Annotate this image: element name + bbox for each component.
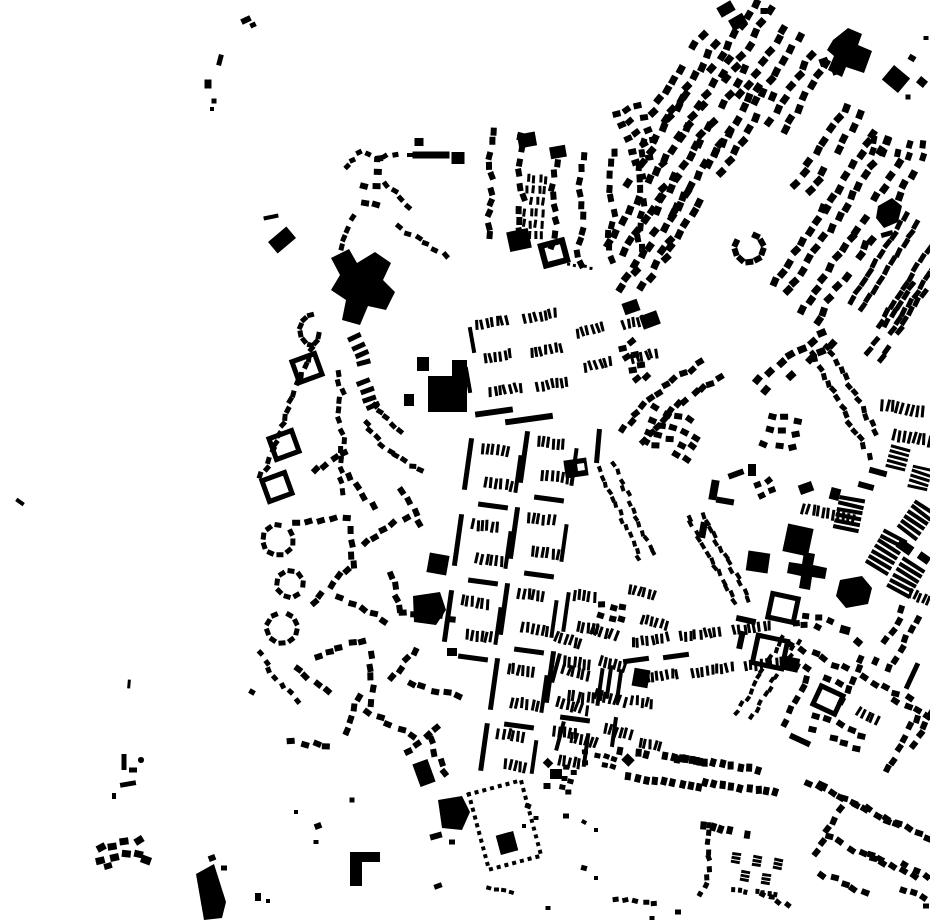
building	[516, 731, 520, 742]
building	[654, 389, 664, 398]
building	[660, 776, 668, 785]
building	[764, 476, 773, 485]
building-cluster	[797, 232, 870, 327]
building	[294, 810, 298, 814]
building	[278, 570, 287, 578]
building	[906, 140, 914, 149]
building	[724, 155, 735, 166]
building	[808, 726, 817, 734]
building	[816, 505, 820, 516]
building	[531, 826, 536, 831]
building	[798, 481, 815, 495]
building	[428, 360, 467, 412]
building-cluster	[338, 213, 356, 251]
building	[257, 649, 265, 657]
building	[662, 84, 673, 95]
building	[709, 758, 717, 767]
building	[711, 665, 714, 675]
building	[583, 363, 587, 373]
building	[468, 577, 498, 586]
building	[551, 203, 559, 212]
building	[706, 830, 712, 836]
building	[818, 136, 829, 147]
building	[438, 796, 470, 830]
building	[276, 552, 283, 557]
building	[516, 217, 522, 225]
building	[447, 648, 457, 656]
building-cluster	[574, 152, 588, 269]
building	[502, 729, 507, 740]
building	[292, 520, 300, 526]
building	[520, 621, 525, 632]
building	[566, 699, 571, 710]
building	[340, 234, 347, 242]
building	[462, 438, 474, 490]
building	[210, 107, 214, 111]
building	[581, 819, 587, 825]
building	[661, 380, 671, 389]
building	[212, 99, 217, 104]
building	[522, 762, 527, 773]
building-cluster	[567, 690, 595, 704]
building	[651, 777, 658, 786]
building	[368, 650, 375, 659]
building	[559, 784, 566, 790]
building	[404, 496, 413, 506]
building	[914, 829, 923, 837]
building-cluster	[576, 321, 605, 339]
building	[768, 894, 775, 900]
building	[545, 626, 549, 637]
building	[563, 814, 569, 819]
building	[559, 698, 565, 709]
building	[811, 215, 822, 226]
building	[402, 514, 412, 523]
building	[335, 416, 342, 424]
building	[768, 620, 771, 630]
building	[785, 80, 796, 91]
building	[561, 439, 565, 450]
building	[541, 240, 567, 265]
building	[544, 783, 551, 789]
building	[813, 175, 824, 186]
building	[571, 690, 575, 701]
building	[577, 589, 581, 600]
building-cluster	[470, 518, 499, 533]
building-cluster	[563, 655, 591, 670]
building	[541, 625, 546, 636]
building	[866, 159, 877, 170]
building	[895, 191, 905, 202]
building	[264, 628, 271, 636]
building	[719, 759, 727, 768]
building	[826, 122, 837, 133]
building	[618, 215, 628, 226]
building	[263, 659, 271, 667]
building	[466, 792, 471, 797]
building-cluster	[347, 332, 371, 367]
building	[514, 646, 544, 655]
building	[285, 611, 294, 619]
building	[468, 577, 498, 586]
building	[757, 622, 761, 632]
building-cluster	[348, 526, 358, 569]
building	[671, 450, 681, 459]
building	[606, 185, 613, 193]
building	[530, 208, 533, 216]
building	[356, 377, 371, 387]
building	[460, 594, 465, 605]
building-cluster	[731, 231, 766, 265]
building	[417, 357, 429, 371]
building	[527, 174, 531, 182]
building	[468, 327, 476, 353]
building	[691, 433, 701, 442]
building	[364, 150, 372, 157]
building	[706, 822, 711, 828]
building	[624, 235, 635, 246]
building	[608, 221, 616, 230]
building	[545, 380, 551, 390]
building	[576, 189, 584, 198]
building	[888, 626, 898, 636]
building	[576, 758, 580, 769]
building	[518, 761, 522, 772]
building	[373, 183, 381, 189]
building	[816, 780, 828, 791]
building-cluster	[537, 436, 565, 450]
building-cluster	[817, 871, 870, 897]
building	[540, 591, 545, 602]
building	[248, 688, 256, 695]
building	[279, 420, 287, 429]
building-cluster	[825, 832, 888, 867]
building	[636, 695, 639, 705]
building	[290, 390, 297, 398]
building	[551, 169, 558, 177]
building	[387, 571, 395, 581]
building	[611, 208, 618, 217]
building	[649, 616, 654, 626]
building	[621, 105, 631, 115]
building	[679, 369, 688, 377]
building	[522, 314, 527, 324]
building	[744, 830, 751, 839]
building	[715, 167, 726, 178]
building	[557, 754, 562, 765]
building	[754, 661, 758, 671]
building	[335, 379, 342, 387]
building	[387, 518, 397, 528]
building	[465, 595, 470, 606]
building-cluster	[286, 738, 329, 750]
building	[751, 231, 761, 240]
building	[505, 446, 510, 457]
building	[127, 679, 131, 688]
building	[349, 213, 357, 222]
building	[577, 463, 585, 471]
building	[701, 89, 712, 100]
building	[904, 823, 914, 833]
building	[665, 669, 670, 679]
building	[412, 507, 421, 517]
building	[822, 674, 832, 683]
building	[774, 34, 784, 45]
building	[548, 183, 556, 192]
building	[610, 756, 617, 763]
building	[563, 457, 588, 478]
building	[489, 137, 495, 145]
building	[261, 542, 268, 550]
building	[857, 481, 874, 491]
building	[537, 436, 541, 447]
building	[879, 183, 890, 194]
building	[584, 325, 589, 335]
building	[543, 758, 554, 769]
building	[287, 568, 295, 574]
building	[792, 695, 801, 705]
building	[880, 683, 890, 692]
building	[899, 886, 908, 894]
building-cluster	[481, 443, 510, 457]
building	[383, 720, 393, 729]
building	[527, 512, 531, 523]
building	[501, 384, 507, 394]
building	[559, 524, 568, 562]
building-cluster	[899, 886, 928, 902]
building	[531, 546, 535, 557]
building	[554, 342, 558, 352]
building	[743, 889, 748, 895]
building	[360, 386, 375, 395]
building	[278, 640, 285, 646]
building	[522, 208, 526, 216]
building	[350, 798, 355, 803]
building	[789, 733, 811, 748]
building	[811, 649, 821, 657]
building	[523, 795, 528, 800]
building	[653, 94, 664, 105]
building	[768, 594, 798, 623]
building	[815, 615, 822, 621]
building	[633, 102, 642, 110]
building	[751, 0, 761, 9]
building	[923, 270, 930, 281]
building	[594, 429, 602, 463]
building	[749, 660, 753, 670]
building	[700, 821, 707, 829]
building	[311, 465, 321, 475]
building	[416, 466, 424, 473]
building	[841, 271, 852, 282]
building	[790, 245, 801, 256]
building-cluster	[387, 647, 420, 682]
building	[624, 772, 631, 781]
building	[361, 199, 370, 206]
building	[882, 65, 910, 93]
building	[795, 31, 805, 42]
building-cluster	[871, 605, 922, 673]
building-cluster	[897, 499, 930, 541]
building	[816, 328, 827, 338]
building	[495, 521, 499, 532]
building	[922, 433, 926, 445]
building	[810, 243, 821, 254]
building	[340, 488, 346, 496]
building	[791, 431, 800, 438]
building	[745, 259, 754, 266]
building	[640, 530, 645, 537]
building	[831, 281, 842, 292]
building	[339, 387, 346, 395]
building	[525, 699, 529, 710]
building	[712, 539, 719, 547]
building	[632, 540, 637, 547]
building	[490, 317, 494, 327]
building	[221, 866, 227, 871]
building	[507, 663, 512, 674]
building	[632, 637, 635, 647]
building	[833, 393, 841, 402]
building	[531, 667, 536, 678]
building	[129, 768, 137, 773]
building	[786, 705, 795, 715]
building	[535, 624, 540, 635]
building	[622, 697, 628, 708]
building	[612, 110, 621, 118]
building	[357, 638, 366, 646]
building	[329, 514, 338, 522]
building	[905, 721, 914, 731]
building	[338, 428, 346, 437]
building	[649, 226, 660, 237]
building	[529, 221, 532, 229]
building	[365, 426, 374, 434]
building	[758, 440, 768, 449]
building	[325, 648, 334, 656]
building-cluster	[488, 382, 522, 397]
building	[773, 866, 782, 871]
building	[485, 318, 490, 328]
building	[103, 862, 112, 870]
building	[490, 444, 495, 455]
building-cluster	[335, 370, 347, 496]
building	[631, 317, 635, 327]
building	[847, 845, 857, 854]
building	[121, 850, 131, 858]
building	[891, 428, 897, 440]
building	[906, 95, 911, 100]
building	[334, 570, 344, 580]
building	[752, 863, 761, 867]
building	[212, 99, 217, 104]
building	[449, 840, 455, 845]
building	[735, 572, 742, 580]
building	[639, 140, 649, 149]
building	[701, 778, 709, 787]
building	[755, 889, 759, 894]
building	[578, 164, 584, 172]
building	[300, 580, 306, 587]
building	[620, 320, 626, 330]
building	[898, 179, 908, 190]
building	[297, 330, 303, 338]
building	[395, 223, 404, 231]
building	[695, 668, 700, 678]
building	[133, 835, 144, 846]
building	[628, 531, 634, 538]
building	[897, 605, 905, 614]
building	[613, 630, 620, 641]
building	[674, 229, 684, 240]
building	[798, 481, 815, 495]
building	[780, 124, 790, 135]
building	[350, 852, 380, 886]
building	[589, 267, 592, 270]
building	[675, 910, 681, 915]
building	[483, 476, 488, 487]
building	[552, 216, 560, 225]
building	[594, 876, 598, 880]
building	[519, 858, 524, 863]
building	[869, 147, 877, 157]
building	[314, 822, 323, 830]
building	[907, 624, 916, 634]
building	[697, 891, 704, 898]
building	[802, 663, 812, 673]
building	[534, 816, 539, 820]
building	[678, 159, 689, 170]
building	[555, 378, 559, 388]
building	[304, 518, 313, 526]
building-cluster	[474, 552, 504, 567]
building-cluster	[343, 149, 399, 171]
building	[488, 658, 500, 710]
building	[776, 357, 787, 368]
building	[850, 388, 858, 397]
building	[778, 427, 786, 433]
building	[453, 692, 463, 701]
building	[524, 803, 531, 810]
building	[894, 401, 900, 413]
building	[849, 122, 859, 133]
building	[909, 889, 918, 897]
building	[905, 152, 913, 162]
building	[292, 591, 301, 599]
building	[743, 661, 748, 671]
building	[240, 15, 252, 25]
courtyard-building	[269, 431, 299, 460]
building	[695, 129, 706, 140]
building	[608, 158, 614, 166]
building-cluster	[891, 428, 930, 447]
building	[830, 662, 839, 670]
building	[901, 238, 911, 249]
building	[622, 177, 633, 188]
building	[853, 637, 864, 648]
building	[368, 699, 375, 707]
building	[610, 604, 618, 612]
building	[707, 866, 712, 872]
building	[680, 428, 690, 437]
building	[647, 107, 658, 118]
building	[907, 54, 916, 63]
building	[373, 433, 381, 442]
building	[751, 680, 757, 687]
building	[354, 693, 363, 703]
building-cluster	[811, 804, 845, 858]
building	[657, 182, 668, 193]
